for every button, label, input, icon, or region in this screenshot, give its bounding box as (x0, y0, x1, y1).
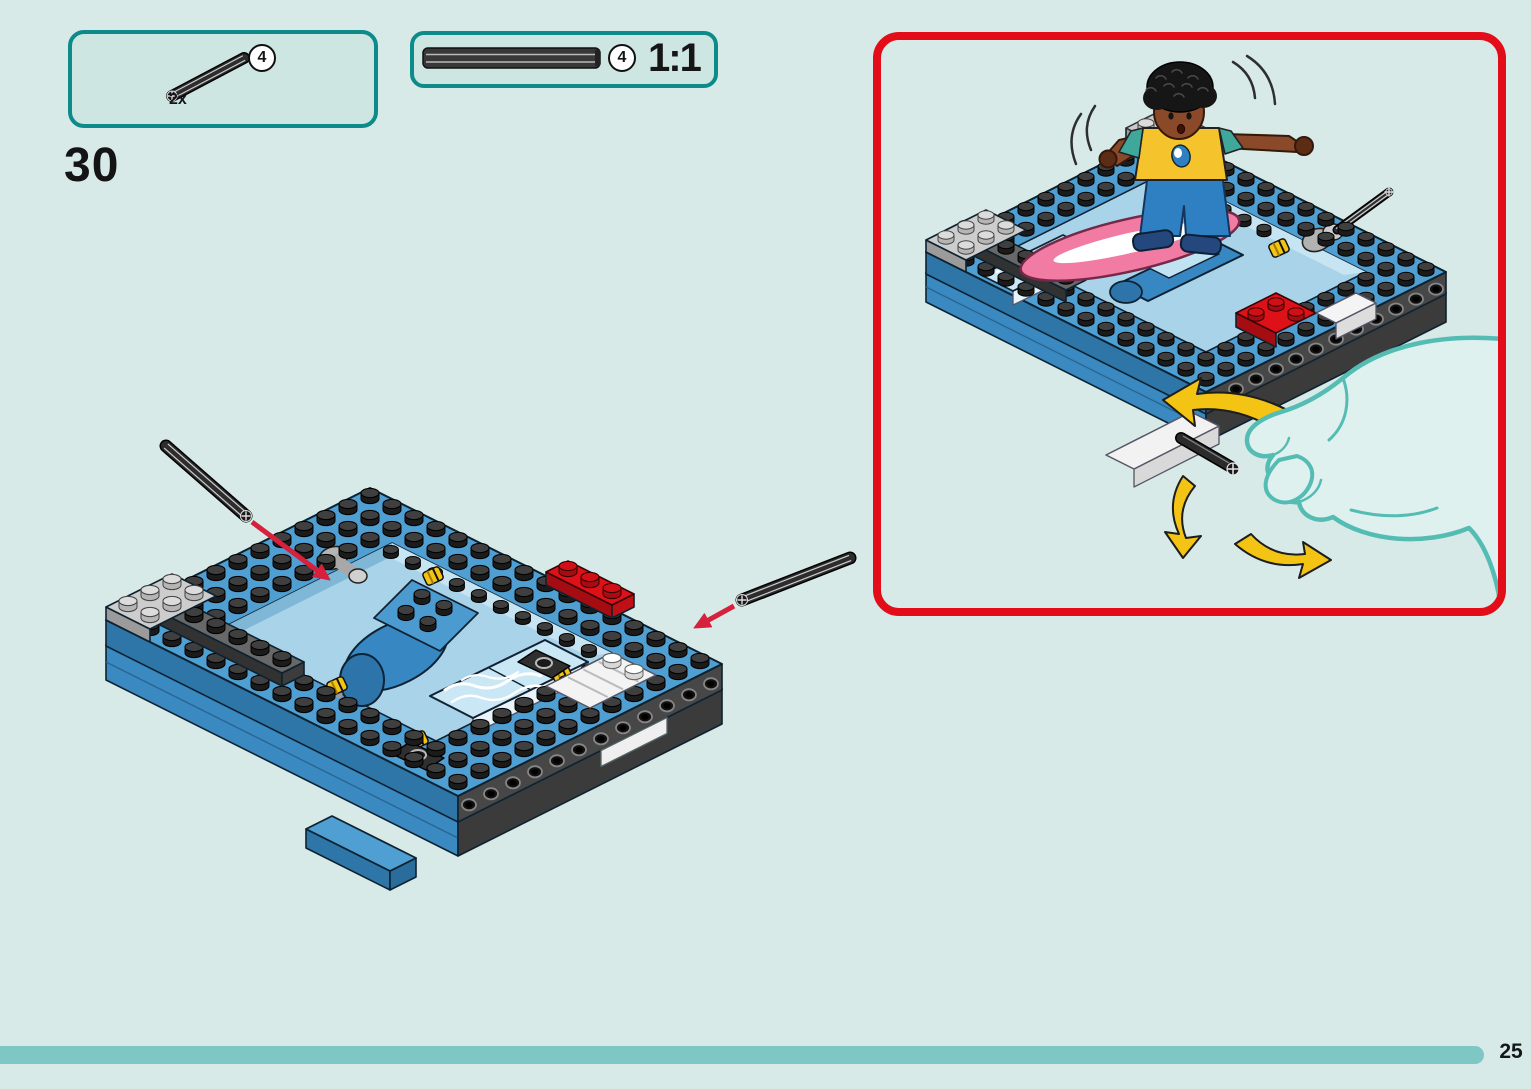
scale-callout: 4 1:1 (410, 31, 718, 88)
technic-axle-icon (737, 555, 852, 605)
technic-axle-actual-size-icon (414, 35, 614, 83)
part-size-badge-label: 4 (258, 49, 267, 67)
technic-axle-icon (164, 444, 251, 522)
part-quantity-label: 2x (169, 91, 187, 109)
scale-size-badge: 4 (608, 44, 636, 72)
scale-label: 1:1 (648, 38, 700, 78)
progress-bar (0, 1046, 1484, 1064)
technic-axle-4-icon (72, 34, 372, 122)
instruction-page: { "page": {"step_number": "30", "page_nu… (0, 0, 1531, 1089)
completed-model-callout (873, 32, 1506, 616)
page-number: 25 (1494, 1040, 1528, 1064)
build-step-model-illustration (100, 428, 870, 893)
scale-size-badge-label: 4 (618, 49, 627, 67)
assembled-model-illustration (881, 40, 1498, 608)
parts-callout: 4 2x (68, 30, 378, 128)
insert-arrow-icon (694, 606, 734, 628)
part-size-badge: 4 (248, 44, 276, 72)
step-number: 30 (64, 138, 119, 193)
